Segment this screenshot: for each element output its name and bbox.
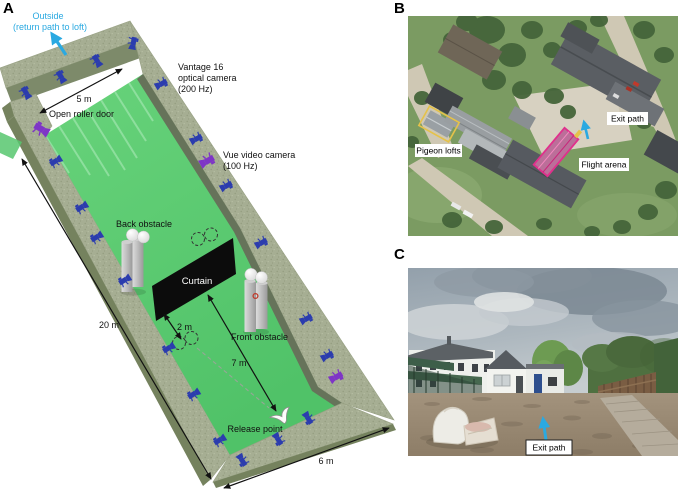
- curtain-label: Curtain: [182, 276, 213, 287]
- vantage-camera-label-line2: optical camera: [178, 73, 237, 83]
- vue-camera-label-line2: (100 Hz): [223, 161, 258, 171]
- open-roller-door-label: Open roller door: [49, 109, 114, 119]
- panel-a-arena-schematic: Curtain: [0, 0, 405, 494]
- back-obstacle-label: Back obstacle: [116, 219, 172, 229]
- exit-path-label: Exit path: [611, 114, 644, 124]
- arena-width-label: 6 m: [318, 456, 333, 466]
- release-point-label: Release point: [227, 424, 283, 434]
- panel-c-ground-photo: Exit path: [392, 246, 681, 494]
- front-obstacle-label: Front obstacle: [231, 332, 288, 342]
- door-width-label: 5 m: [76, 94, 91, 104]
- release-distance-label: 7 m: [231, 358, 246, 368]
- arena-length-label: 20 m: [99, 320, 119, 330]
- pigeon-lofts-label: Pigeon lofts: [416, 146, 460, 156]
- outside-label-line1: Outside: [32, 11, 63, 21]
- exit-path-label: Exit path: [532, 443, 565, 453]
- vantage-camera-label-line1: Vantage 16: [178, 62, 223, 72]
- figure: A B C: [0, 0, 681, 494]
- vantage-camera-label-line3: (200 Hz): [178, 84, 213, 94]
- vue-camera-label-line1: Vue video camera: [223, 150, 295, 160]
- outside-label-line2: (return path to loft): [13, 22, 87, 32]
- flight-arena-label: Flight arena: [582, 160, 627, 170]
- panel-b-aerial-photo: Pigeon lofts Exit path Flight arena: [392, 0, 681, 245]
- curtain-gap-label: 2 m: [177, 322, 192, 332]
- front-obstacle: [243, 268, 269, 335]
- blue-door: [534, 374, 542, 393]
